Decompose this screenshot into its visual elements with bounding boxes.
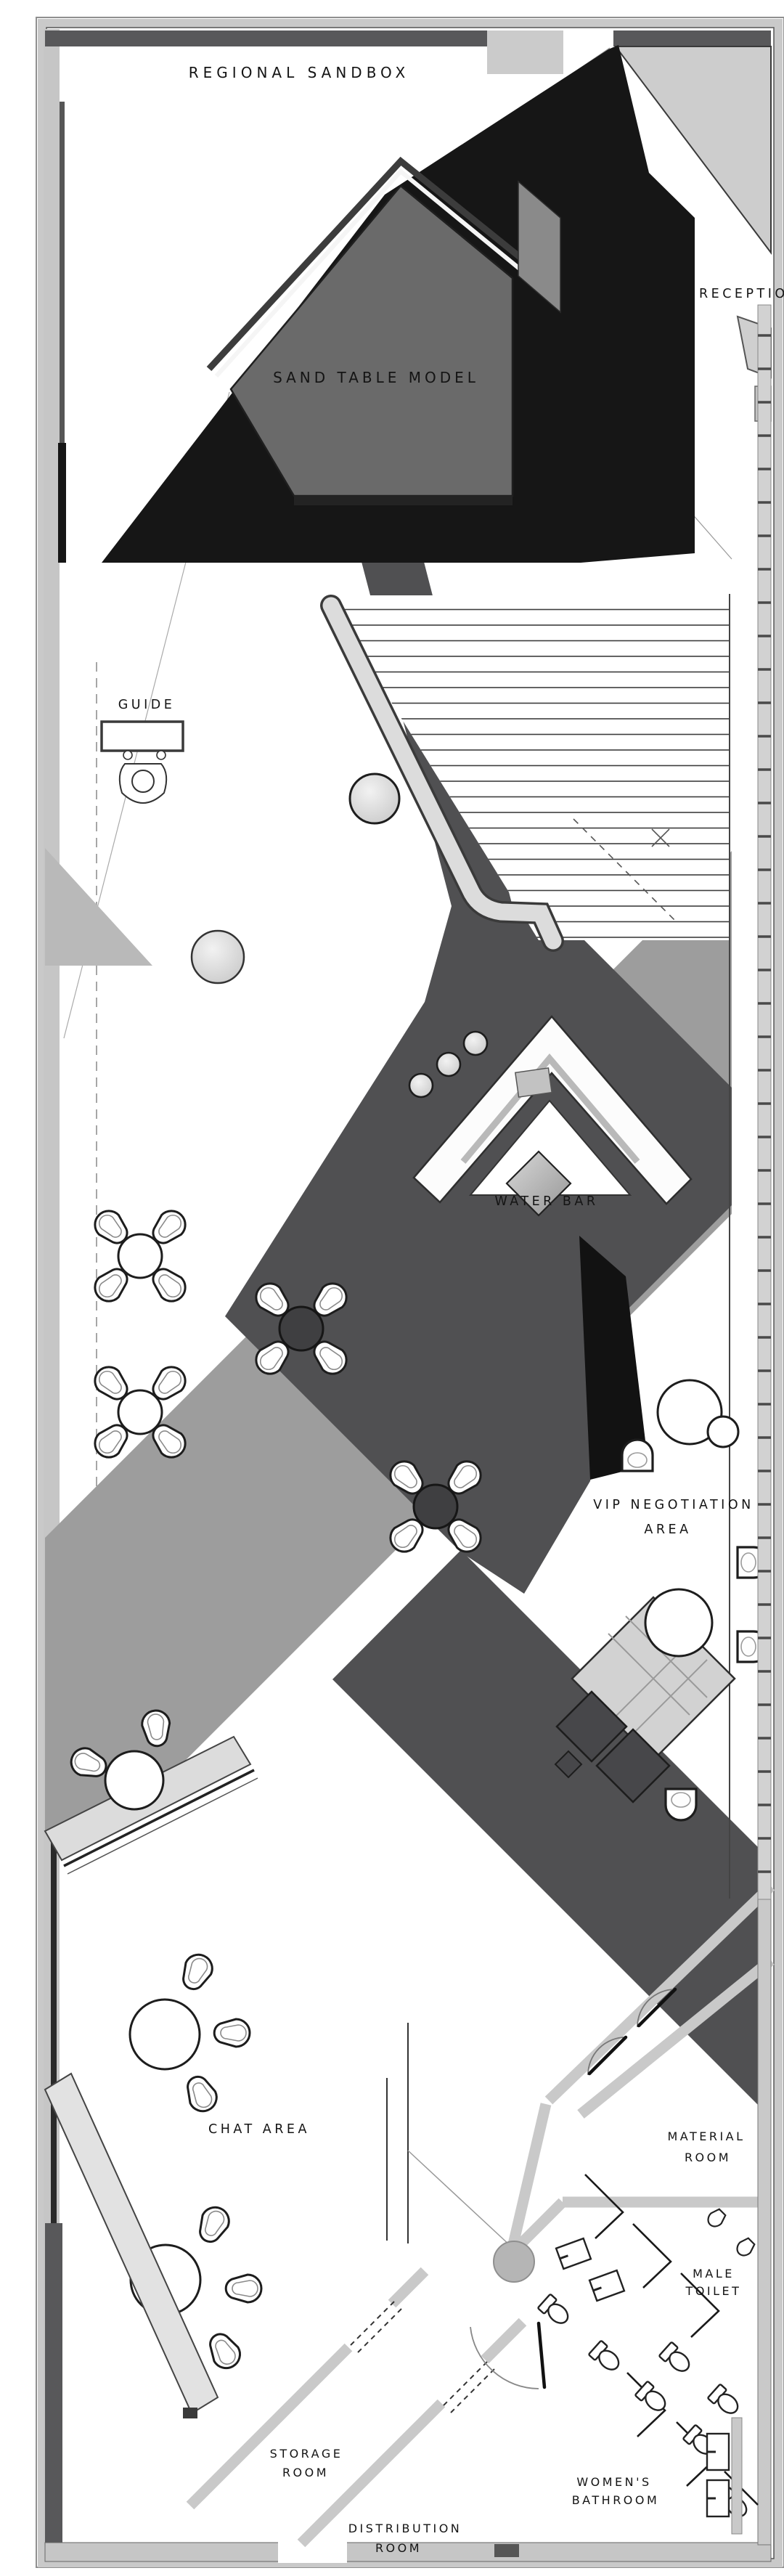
left-wall-line (60, 102, 65, 443)
sink-symbol (556, 2238, 591, 2269)
guide-person-head (132, 770, 154, 792)
bar-stool (409, 1074, 433, 1097)
curtain-wall (758, 305, 771, 1899)
label-chat-area: CHAT AREA (208, 2122, 310, 2137)
armchair-symbol (622, 1440, 653, 1471)
label-distribution: DISTRIBUTION (348, 2522, 462, 2535)
round-table (118, 1234, 162, 1278)
bottom-wall-block (494, 2544, 519, 2557)
left-wall-dark-band (45, 2223, 62, 2547)
label-vip-area: AREA (644, 1523, 691, 1537)
toilet-symbol (538, 2294, 573, 2328)
urinal-symbol (734, 2236, 756, 2259)
toilet-symbol (708, 2384, 743, 2418)
label-regional-sandbox: REGIONAL SANDBOX (189, 64, 409, 81)
label-storage: STORAGE (270, 2447, 343, 2461)
chair-symbol (181, 2072, 221, 2116)
water-bar-back-counter (515, 1068, 552, 1097)
guide-station (102, 722, 183, 803)
guide-person-hand (123, 751, 132, 759)
label-water-bar: WATER BAR (494, 1194, 598, 1209)
round-table (105, 1751, 163, 1809)
corridor-column (494, 2241, 534, 2282)
round-table-dark (279, 1307, 323, 1350)
stair-treads (319, 594, 733, 942)
right-wall-lower (758, 1899, 771, 2545)
floor-plan-canvas: REGIONAL SANDBOX SAND TABLE MODEL RECEPT… (0, 0, 784, 2576)
chair-symbol (214, 2019, 250, 2047)
chat-table (130, 1950, 250, 2116)
round-table (130, 2000, 200, 2069)
bottom-entrance-gap (278, 2541, 347, 2563)
armchair-symbol (666, 1789, 696, 1820)
urinal-symbol (705, 2207, 727, 2230)
sand-table-base-bar (294, 496, 513, 505)
label-male: MALE (693, 2267, 735, 2281)
label-guide: GUIDE (118, 698, 176, 712)
display-wall (45, 2074, 218, 2413)
toilet-symbol (589, 2341, 624, 2375)
label-womens-bathroom: BATHROOM (572, 2493, 660, 2507)
chat-area-zone (45, 1709, 511, 2418)
sand-table-zone (102, 45, 695, 563)
top-wall-band (45, 30, 487, 46)
storage-wall-1 (392, 2271, 425, 2304)
toilet-symbol (659, 2342, 694, 2376)
label-reception: RECEPTION (699, 287, 784, 301)
table-cluster (89, 1205, 191, 1307)
chair-symbol (193, 2203, 233, 2246)
distribution-door-dashed (444, 2362, 494, 2413)
chair-symbol (226, 2275, 261, 2302)
left-wall-black-segment (58, 443, 66, 563)
vip-coffee-table (645, 1589, 712, 1656)
storage-wall-1b (190, 2347, 348, 2506)
chair-symbol (203, 2328, 245, 2373)
column-2 (192, 931, 244, 983)
guide-desk (102, 722, 183, 751)
label-material-room: ROOM (685, 2151, 731, 2164)
bar-stool (437, 1053, 460, 1076)
chair-symbol (176, 1950, 216, 1994)
label-sand-table-model: SAND TABLE MODEL (273, 369, 479, 386)
top-wall-pier (487, 30, 563, 74)
vip-side-table (708, 1417, 738, 1447)
round-table-dark (414, 1485, 457, 1528)
label-distribution-room: ROOM (375, 2541, 422, 2555)
label-male-toilet: TOILET (685, 2284, 742, 2298)
sink-symbol (589, 2270, 624, 2301)
distribution-wall (732, 2418, 742, 2534)
label-storage-room: ROOM (282, 2466, 329, 2479)
floor-plan-page: REGIONAL SANDBOX SAND TABLE MODEL RECEPT… (0, 0, 784, 2576)
storage-wall-2 (485, 2322, 523, 2360)
storage-door-dashed (351, 2302, 401, 2352)
partition-diag-line (408, 2151, 511, 2246)
left-gray-wedge (45, 848, 152, 966)
bar-stool (464, 1032, 487, 1055)
label-material: MATERIAL (667, 2129, 745, 2143)
bathroom-door-leaf (539, 2323, 544, 2387)
display-wall-foot (183, 2408, 197, 2418)
guide-person-hand (157, 751, 166, 759)
column (350, 774, 399, 823)
label-vip-negotiation: VIP NEGOTIATION (593, 1498, 754, 1512)
top-wall-band-right (613, 30, 771, 46)
round-table (118, 1390, 162, 1434)
label-womens: WOMEN'S (576, 2475, 651, 2489)
mullion-ticks (758, 305, 771, 1899)
